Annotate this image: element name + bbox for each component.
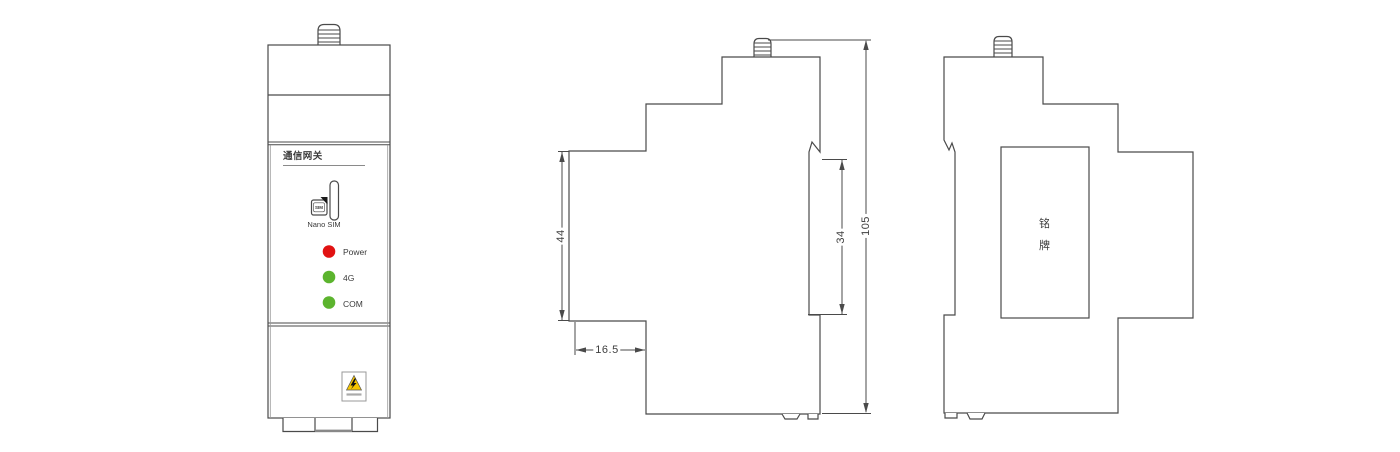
nameplate-label: 铭牌 <box>1036 213 1053 257</box>
com-led-label: COM <box>343 299 363 309</box>
device-body <box>268 45 390 418</box>
rail-clip-notch <box>782 414 800 419</box>
power-led <box>323 245 336 258</box>
4g-led-label: 4G <box>343 273 354 283</box>
antenna-connector-icon <box>994 37 1012 58</box>
rail-clip-notch <box>967 413 985 419</box>
terminal-block <box>283 418 378 432</box>
product-label: 通信网关 <box>283 148 323 162</box>
side-profile-outline <box>569 57 820 414</box>
rail-clip-tab <box>945 413 957 418</box>
nano-sim-label: Nano SIM <box>298 220 350 229</box>
rail-clip-tab <box>808 414 818 419</box>
sim-icon-text: SIM <box>312 205 326 210</box>
dimension-label-44: 44 <box>555 227 567 244</box>
drawing-lines <box>0 0 1400 452</box>
4g-led <box>323 271 336 284</box>
dimension-label-34: 34 <box>835 228 847 245</box>
antenna-connector-icon <box>754 39 771 58</box>
dimension-label-16-5: 16.5 <box>593 344 620 356</box>
power-led-label: Power <box>343 247 367 257</box>
dimension-label-105: 105 <box>860 214 872 238</box>
side-view <box>558 39 871 420</box>
back-side-view <box>944 37 1193 420</box>
technical-drawing: 通信网关 SIM Nano SIM Power 4G COM 铭牌 44 34 … <box>0 0 1400 452</box>
high-voltage-warning-icon <box>342 372 366 401</box>
com-led <box>323 296 336 309</box>
antenna-connector-icon <box>318 25 340 46</box>
